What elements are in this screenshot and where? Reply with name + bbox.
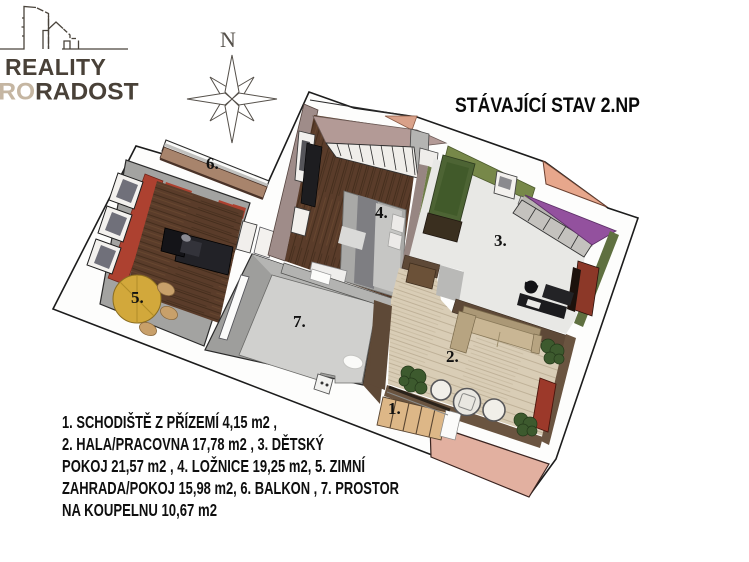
svg-text:NA KOUPELNU 10,67 m2: NA KOUPELNU 10,67 m2 <box>62 500 217 520</box>
svg-text:1. SCHODIŠTĚ Z PŘÍZEMÍ 4,15 m2: 1. SCHODIŠTĚ Z PŘÍZEMÍ 4,15 m2 , <box>62 411 277 432</box>
svg-text:4.: 4. <box>375 203 388 222</box>
svg-text:2.: 2. <box>446 347 459 366</box>
svg-text:3.: 3. <box>494 231 507 250</box>
svg-text:7.: 7. <box>293 312 306 331</box>
svg-text:1.: 1. <box>388 399 401 418</box>
svg-text:POKOJ 21,57 m2 , 4. LOŽNICE 19: POKOJ 21,57 m2 , 4. LOŽNICE 19,25 m2, 5.… <box>62 455 366 476</box>
svg-text:6.: 6. <box>206 154 219 173</box>
svg-text:ZAHRADA/POKOJ 15,98 m2, 6. BAL: ZAHRADA/POKOJ 15,98 m2, 6. BALKON , 7. P… <box>62 478 399 498</box>
svg-text:5.: 5. <box>131 288 144 307</box>
svg-text:PRORADOST: PRORADOST <box>0 79 139 106</box>
svg-text:REALITY: REALITY <box>5 54 106 80</box>
svg-text:STÁVAJÍCÍ STAV 2.NP: STÁVAJÍCÍ STAV 2.NP <box>455 94 640 117</box>
svg-text:N: N <box>220 27 236 52</box>
svg-text:2. HALA/PRACOVNA 17,78 m2 , 3.: 2. HALA/PRACOVNA 17,78 m2 , 3. DĚTSKÝ <box>62 433 324 454</box>
